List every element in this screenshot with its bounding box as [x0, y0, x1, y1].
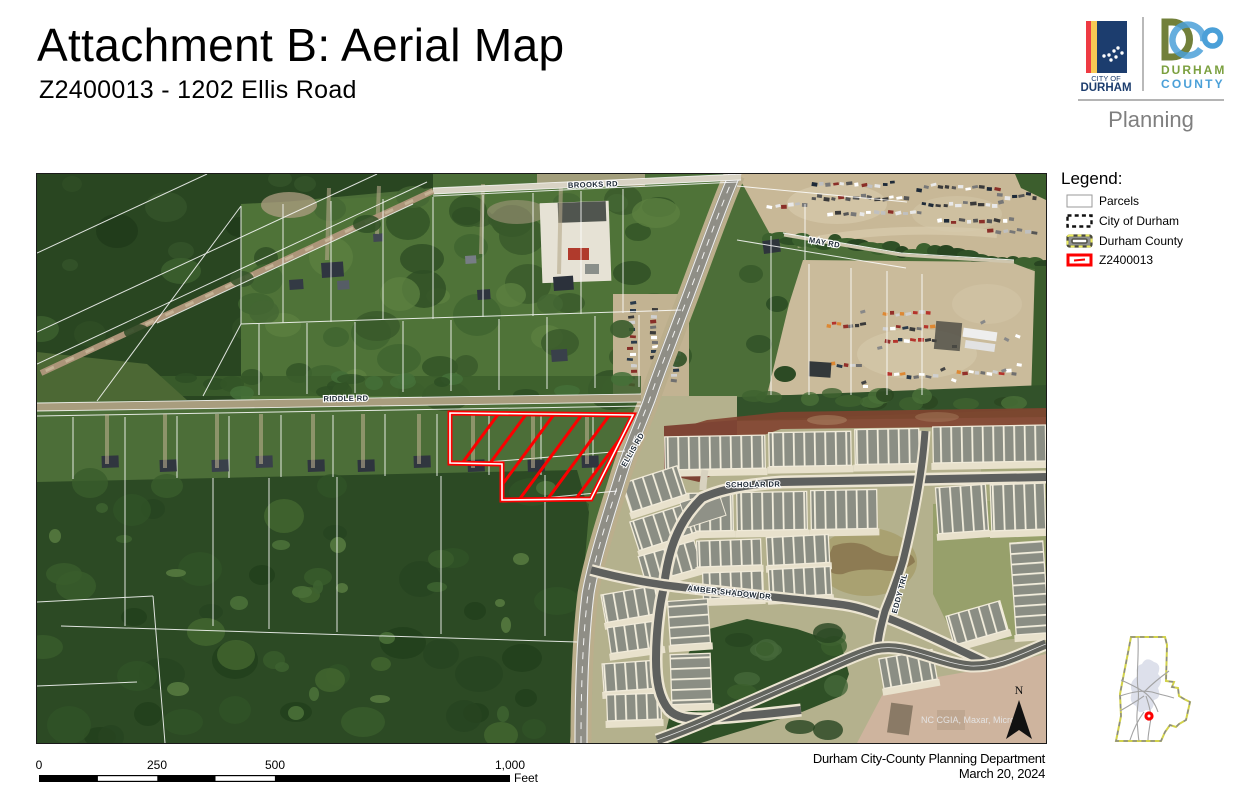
svg-text:COUNTY: COUNTY [1161, 77, 1225, 91]
svg-text:RIDDLE RD: RIDDLE RD [323, 394, 368, 404]
svg-text:SCHOLAR DR: SCHOLAR DR [726, 480, 781, 490]
svg-text:250: 250 [147, 758, 167, 772]
svg-text:500: 500 [265, 758, 285, 772]
svg-text:DURHAM: DURHAM [1161, 63, 1226, 77]
svg-text:Planning: Planning [1108, 107, 1194, 132]
svg-text:N: N [1015, 683, 1024, 697]
svg-text:DURHAM: DURHAM [1080, 82, 1131, 94]
svg-text:BROOKS RD: BROOKS RD [568, 179, 618, 190]
svg-text:0: 0 [36, 758, 43, 772]
svg-text:NC CGIA, Maxar, Microso: NC CGIA, Maxar, Microso [921, 715, 1025, 725]
svg-text:1,000: 1,000 [495, 758, 525, 772]
svg-text:Feet: Feet [514, 771, 539, 785]
